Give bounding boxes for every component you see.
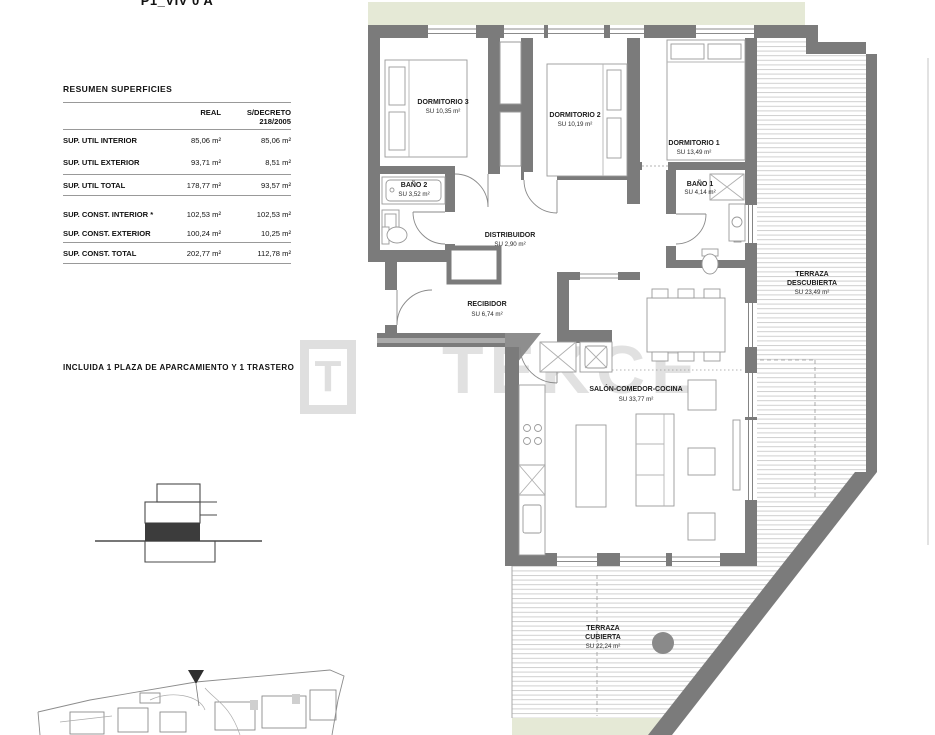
room-name: DESCUBIERTA [787, 280, 837, 287]
room-area: SU 33,77 m² [619, 396, 654, 403]
row-label: SUP. UTIL EXTERIOR [63, 158, 181, 167]
vanity-bano1 [729, 204, 745, 241]
row-real: 202,77 m² [181, 249, 221, 258]
room-name: DISTRIBUIDOR [485, 232, 536, 239]
sofa [636, 414, 674, 506]
table-row: SUP. UTIL TOTAL 178,77 m² 93,57 m² [63, 174, 291, 196]
surface-summary: RESUMEN SUPERFICIES REAL S/DECRETO 218/2… [63, 84, 291, 264]
room-area: SU 4,14 m² [684, 189, 715, 196]
green-strip-bottom [512, 718, 663, 735]
site-plan [38, 670, 344, 735]
row-label: SUP. UTIL TOTAL [63, 181, 181, 190]
kitchen-units [540, 342, 612, 372]
table-row: SUP. CONST. TOTAL 202,77 m² 112,78 m² [63, 242, 291, 264]
section-diagram [95, 484, 262, 562]
room-name: DORMITORIO 3 [417, 99, 468, 106]
room-label-terraza-cubierta: TERRAZA CUBIERTA SU 22,24 m² [585, 625, 621, 650]
room-area: SU 3,52 m² [398, 191, 429, 198]
summary-heading: RESUMEN SUPERFICIES [63, 84, 291, 103]
shower-bano1 [710, 174, 744, 200]
dining-table [647, 289, 725, 361]
row-real: 93,71 m² [181, 158, 221, 167]
highlighted-floor [145, 523, 200, 541]
page-title: P1_VIV 0 A [112, 0, 242, 8]
tv-board [733, 420, 740, 490]
row-label: SUP. UTIL INTERIOR [63, 136, 181, 145]
toilet-bano1 [702, 249, 718, 274]
summary-col-decreto-line1: S/DECRETO [221, 108, 291, 117]
room-name: SALÓN-COMEDOR-COCINA [589, 384, 682, 393]
row-label: SUP. CONST. INTERIOR * [63, 210, 181, 219]
room-area: SU 22,24 m² [586, 643, 621, 650]
table-row: SUP. UTIL INTERIOR 85,06 m² 85,06 m² [63, 130, 291, 151]
room-area: SU 10,35 m² [426, 108, 461, 115]
row-real: 100,24 m² [181, 229, 221, 238]
room-name: BAÑO 1 [687, 179, 714, 188]
row-real: 85,06 m² [181, 136, 221, 145]
row-decreto: 102,53 m² [221, 210, 291, 219]
room-area: SU 13,49 m² [677, 149, 712, 156]
room-name: DORMITORIO 1 [668, 140, 719, 147]
room-label-recibidor: RECIBIDOR SU 6,74 m² [467, 301, 506, 318]
room-area: SU 2,90 m² [494, 241, 525, 248]
row-decreto: 85,06 m² [221, 136, 291, 145]
armchair [688, 380, 716, 410]
room-name: CUBIERTA [585, 634, 621, 641]
room-name: RECIBIDOR [467, 301, 506, 308]
table-row: SUP. CONST. INTERIOR * 102,53 m² 102,53 … [63, 204, 291, 224]
row-decreto: 93,57 m² [221, 181, 291, 190]
room-name: BAÑO 2 [401, 180, 428, 189]
room-label-salon: SALÓN-COMEDOR-COCINA SU 33,77 m² [589, 384, 682, 403]
toilet-bano2 [382, 227, 407, 244]
summary-col-decreto-line2: 218/2005 [221, 117, 291, 126]
kitchen-counter [519, 385, 545, 555]
table-group-gap [63, 196, 291, 204]
armchair [688, 513, 715, 540]
bed-dormitorio2 [547, 64, 627, 176]
row-label: SUP. CONST. EXTERIOR [63, 229, 181, 238]
row-label: SUP. CONST. TOTAL [63, 249, 181, 258]
room-name: TERRAZA [795, 271, 828, 278]
room-area: SU 23,49 m² [795, 289, 830, 296]
table-row: SUP. UTIL EXTERIOR 93,71 m² 8,51 m² [63, 151, 291, 174]
armchair [688, 448, 715, 475]
summary-header-row: REAL S/DECRETO 218/2005 [63, 103, 291, 130]
row-real: 178,77 m² [181, 181, 221, 190]
row-decreto: 112,78 m² [221, 249, 291, 258]
summary-col-real: REAL [181, 108, 221, 117]
terrace-column [652, 632, 674, 654]
summary-col-decreto: S/DECRETO 218/2005 [221, 108, 291, 126]
room-area: SU 6,74 m² [471, 311, 502, 318]
room-label-bano1: BAÑO 1 SU 4,14 m² [684, 179, 715, 196]
row-real: 102,53 m² [181, 210, 221, 219]
table-row: SUP. CONST. EXTERIOR 100,24 m² 10,25 m² [63, 224, 291, 242]
parking-note: INCLUIDA 1 PLAZA DE APARCAMIENTO Y 1 TRA… [63, 363, 294, 372]
green-strip-top [368, 2, 805, 25]
row-decreto: 8,51 m² [221, 158, 291, 167]
floorplan-page: P1_VIV 0 A T TEKCE RESUMEN SUPERFICIES R… [0, 0, 935, 735]
room-area: SU 10,19 m² [558, 121, 593, 128]
kitchen-island [576, 425, 606, 507]
row-decreto: 10,25 m² [221, 229, 291, 238]
room-name: DORMITORIO 2 [549, 112, 600, 119]
room-name: TERRAZA [586, 625, 619, 632]
